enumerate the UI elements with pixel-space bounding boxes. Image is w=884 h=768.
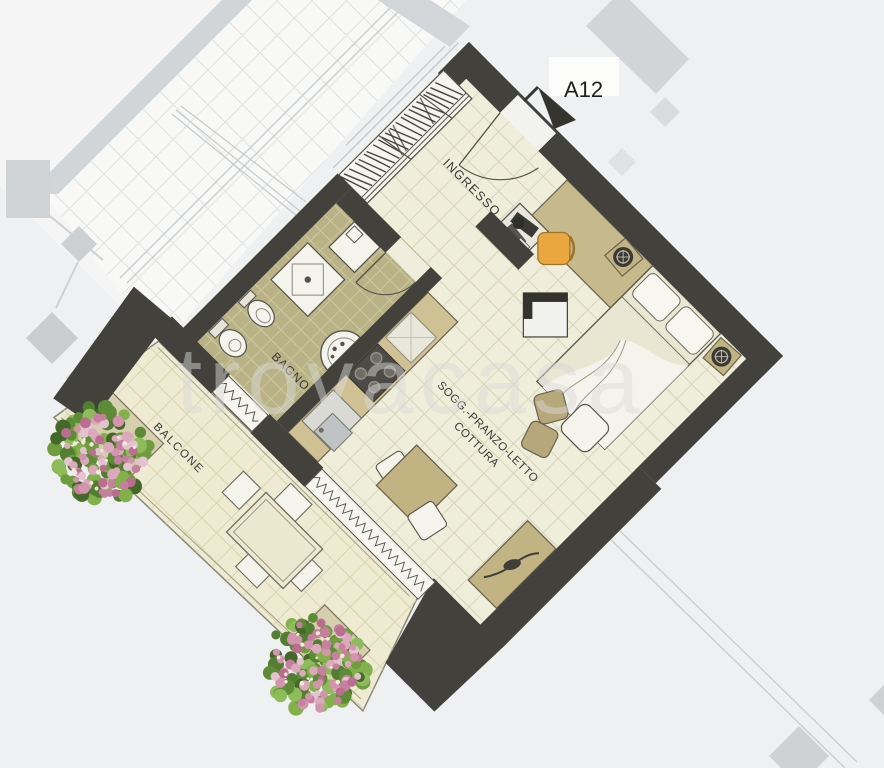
svg-text:trovacasa: trovacasa <box>176 328 647 433</box>
svg-text:A12: A12 <box>564 77 603 102</box>
